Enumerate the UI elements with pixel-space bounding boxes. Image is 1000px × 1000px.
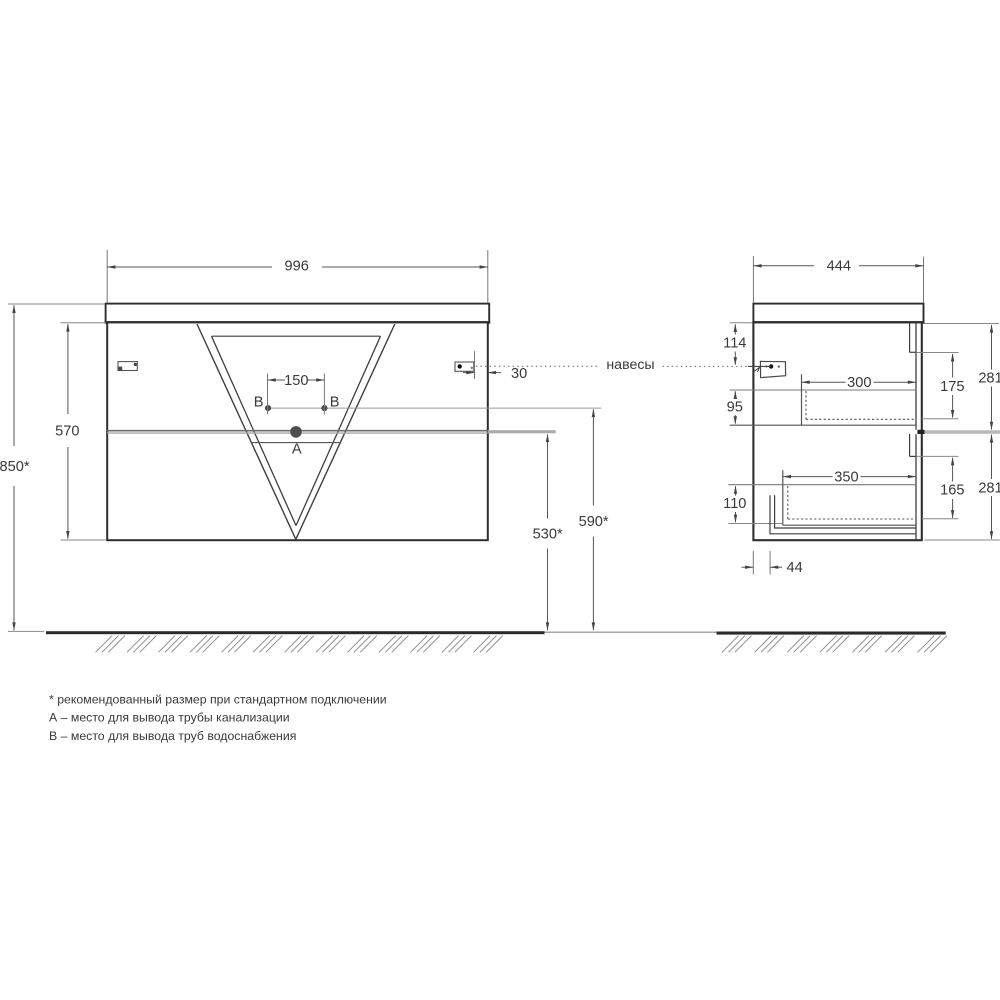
svg-text:350: 350 [834,469,858,485]
svg-text:165: 165 [940,483,964,499]
svg-text:300: 300 [847,375,871,391]
svg-text:530*: 530* [533,526,563,542]
svg-text:281: 281 [978,371,1000,387]
svg-text:590*: 590* [579,514,609,530]
svg-text:150: 150 [284,373,308,389]
svg-text:навесы: навесы [606,357,654,373]
svg-text:996: 996 [285,259,309,275]
svg-text:30: 30 [511,366,527,382]
svg-text:* рекомендованный размер при с: * рекомендованный размер при стандартном… [49,692,387,706]
svg-text:114: 114 [723,335,746,351]
svg-text:B: B [254,394,264,410]
svg-text:110: 110 [723,496,746,512]
svg-text:В – место для вывода труб водо: В – место для вывода труб водоснабжения [49,729,296,743]
svg-text:A: A [292,442,302,458]
svg-text:B: B [330,394,340,410]
svg-text:570: 570 [55,423,79,439]
svg-text:175: 175 [940,379,964,395]
svg-text:444: 444 [827,258,851,274]
svg-text:850*: 850* [0,459,30,475]
svg-text:281: 281 [978,480,1000,496]
svg-text:44: 44 [787,560,803,576]
svg-text:95: 95 [727,399,743,415]
svg-text:А – место для вывода трубы кан: А – место для вывода трубы канализации [49,711,290,725]
